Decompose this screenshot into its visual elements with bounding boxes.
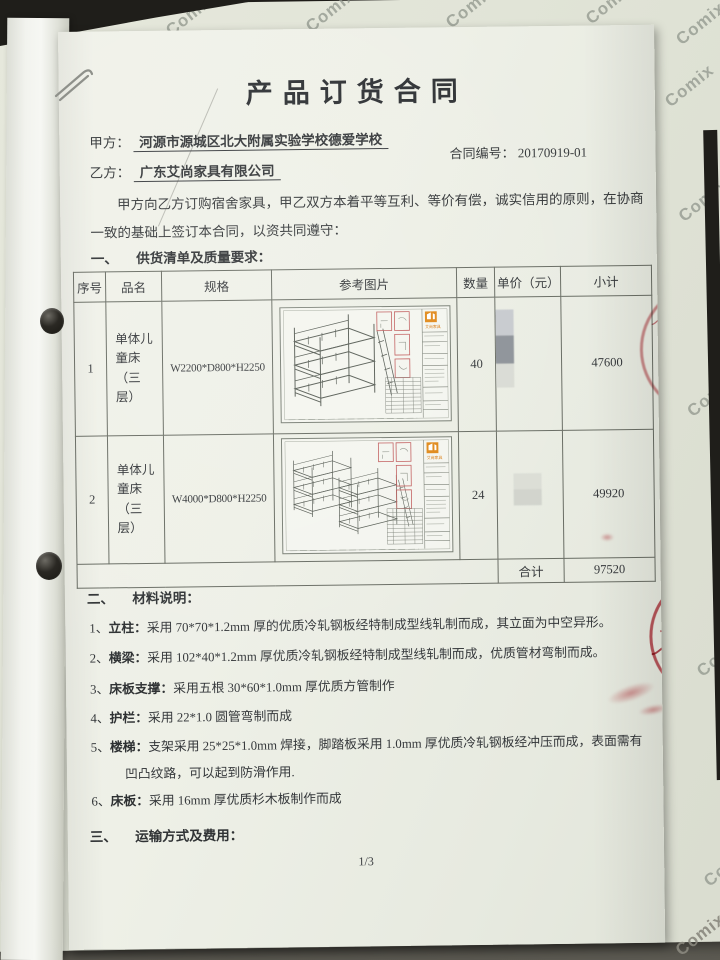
comix-logo: Comix [700, 840, 720, 891]
contract-number-line: 合同编号： 20170919-01 [449, 142, 587, 163]
material-item-1: 1、立柱：采用 70*70*1.2mm 厚的优质冷轧钢板经特制成型线轧制而成，其… [123, 609, 651, 642]
col-header-subtotal: 小计 [560, 265, 651, 296]
section2-heading: 二、 材料说明： [87, 586, 200, 607]
paperclip-icon [50, 56, 102, 102]
row1-spec: W2200*D800*H2250 [162, 300, 274, 435]
row2-reference-image: 艾尚家具 [273, 432, 460, 562]
material-item-3: 3、床板支撑：采用五根 30*60*1.0mm 厚优质方管制作 [124, 670, 652, 703]
col-header-qty: 数量 [456, 267, 494, 297]
document-title: 产品订货合同 [59, 67, 655, 113]
total-row-empty-cell [77, 559, 498, 588]
section3-heading: 三、 运输方式及费用： [90, 824, 244, 846]
bunk-bed-drawing-single: 艾尚家具 [278, 304, 452, 424]
material-item-5: 5、楼梯：支架采用 25*25*1.0mm 焊接，脚踏板采用 1.0mm 厚优质… [125, 728, 654, 788]
row1-product-name: 单体儿童床（三层） [106, 301, 164, 436]
total-label: 合计 [498, 558, 564, 583]
comix-logo: Comix [661, 60, 718, 111]
contract-page: 产品订货合同 甲方： 河源市源城区北大附属实验学校德爱学校 乙方： 广东艾尚家具… [58, 25, 665, 950]
row2-subtotal: 49920 [562, 429, 655, 558]
section1-number: 一、 [91, 247, 133, 268]
contract-number-value: 20170919-01 [518, 145, 588, 161]
punch-hole [40, 308, 64, 334]
row1-no: 1 [74, 302, 108, 436]
row2-product-name: 单体儿童床（三层） [107, 435, 165, 564]
col-header-no: 序号 [73, 272, 105, 302]
row2-spec: W4000*D800*H2250 [163, 434, 275, 563]
aishang-logo-text: 艾尚家具 [426, 454, 442, 459]
party-a-name: 河源市源城区北大附属实验学校德爱学校 [133, 132, 388, 152]
material-item-6: 6、床板：采用 16mm 厚优质杉木板制作而成 [125, 782, 653, 815]
row1-reference-image: 艾尚家具 [272, 298, 459, 434]
material-item-4: 4、护栏：采用 22*1.0 圆管弯制而成 [124, 699, 652, 732]
section2-number: 二、 [87, 587, 129, 608]
section1-title: 供货清单及质量要求： [136, 249, 271, 266]
material-item-2: 2、横梁：采用 102*40*1.2mm 厚优质冷轧钢板经特制成型线轧制而成，优… [123, 639, 651, 672]
party-b-name: 广东艾尚家具有限公司 [134, 163, 281, 182]
row2-qty: 24 [458, 431, 498, 559]
party-a-label: 甲方： [89, 135, 130, 150]
col-header-unit-price: 单价（元） [494, 266, 560, 297]
contract-number-label: 合同编号： [449, 145, 514, 161]
section2-title: 材料说明： [132, 590, 200, 606]
row1-subtotal: 47600 [561, 295, 654, 430]
party-b-line: 乙方： 广东艾尚家具有限公司 [90, 159, 281, 181]
section3-number: 三、 [90, 825, 132, 846]
col-header-image: 参考图片 [271, 268, 456, 300]
bunk-bed-drawing-double: 艾尚家具 [279, 435, 453, 555]
page-number: 1/3 [68, 851, 664, 873]
censor-mosaic [495, 309, 515, 387]
row1-unit-price-censored [495, 296, 563, 431]
total-value: 97520 [564, 557, 655, 582]
col-header-spec: 规格 [161, 270, 271, 301]
punch-hole [36, 552, 62, 580]
row2-no: 2 [75, 436, 109, 564]
goods-table: 序号 品名 规格 参考图片 数量 单价（元） 小计 1 单体儿童床（三层） W2… [73, 265, 656, 589]
intro-paragraph-line2: 一致的基础上签订本合同，以资共同遵守： [90, 218, 347, 241]
table-row: 2 单体儿童床（三层） W4000*D800*H2250 [75, 429, 655, 564]
section3-title: 运输方式及费用： [135, 828, 243, 844]
aishang-logo-text: 艾尚家具 [425, 323, 441, 328]
col-header-name: 品名 [105, 271, 161, 302]
photo-of-contract-document: Comix Comix Comix Comix Comix Comix Comi… [0, 0, 720, 960]
censor-mosaic [513, 473, 541, 505]
party-b-label: 乙方： [90, 165, 131, 180]
row2-unit-price-censored [496, 430, 564, 559]
row1-qty: 40 [457, 297, 497, 431]
section1-heading: 一、 供货清单及质量要求： [91, 245, 272, 267]
table-row: 1 单体儿童床（三层） W2200*D800*H2250 [74, 295, 654, 436]
party-a-line: 甲方： 河源市源城区北大附属实验学校德爱学校 [89, 128, 388, 152]
comix-logo: Comix [672, 0, 720, 49]
